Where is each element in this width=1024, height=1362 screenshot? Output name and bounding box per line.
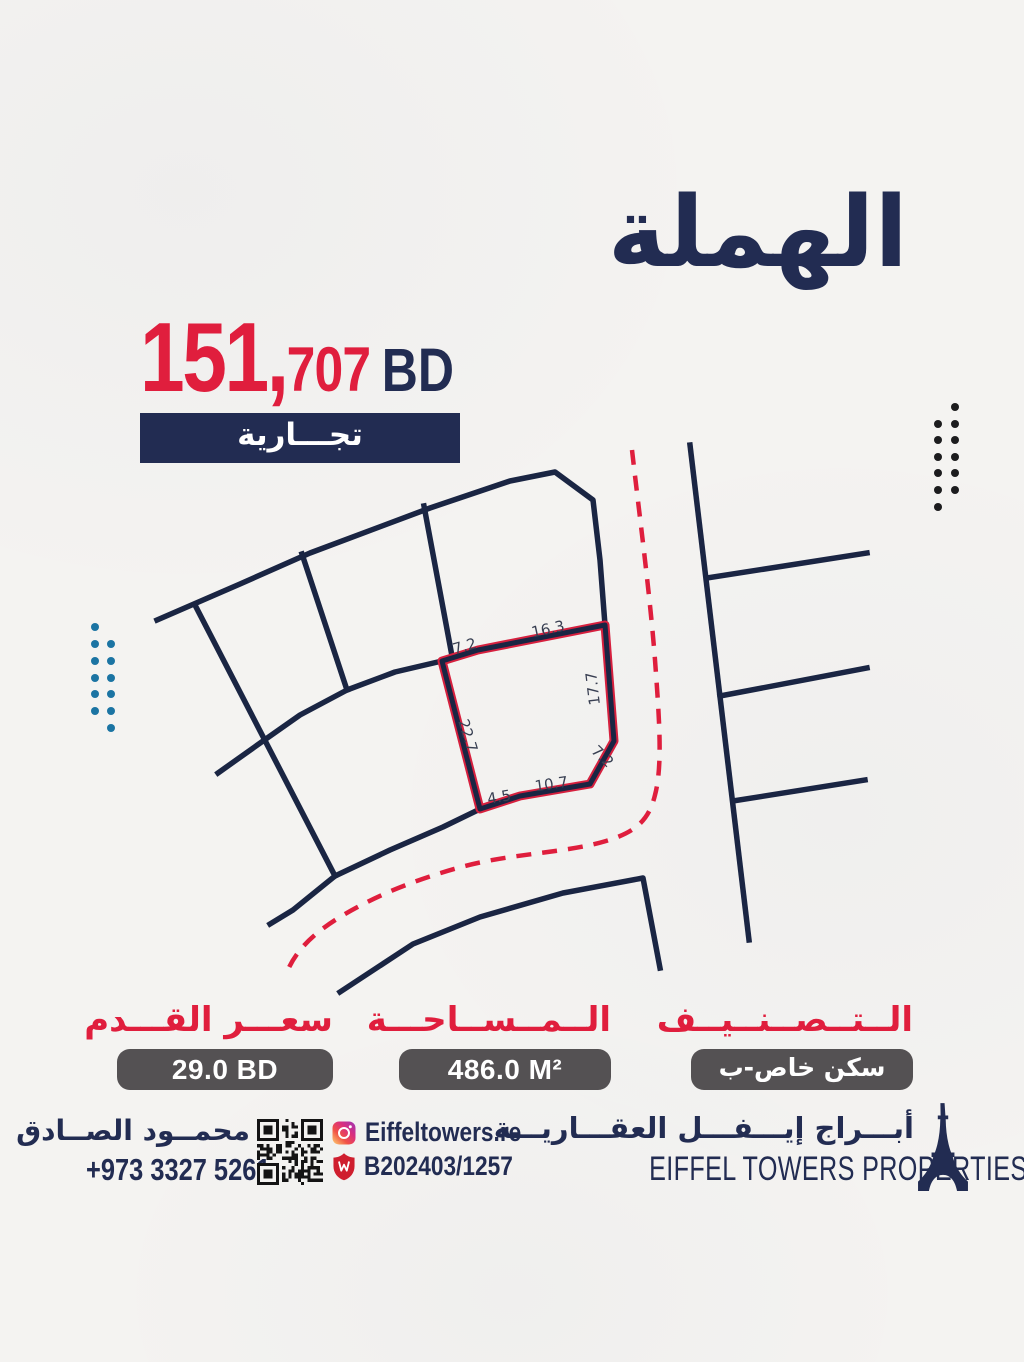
plot-divider-b — [302, 554, 347, 690]
dots-pattern-left — [91, 623, 115, 732]
price-per-foot-value-box: 29.0 BD — [117, 1049, 333, 1090]
boundary-dashed-line — [287, 450, 660, 972]
plot-divider-c — [424, 506, 452, 656]
license-shield-icon — [333, 1153, 355, 1181]
classification-value: سكن خاص-ب — [719, 1053, 886, 1086]
agent-phone: +973 3327 5261 — [86, 1153, 250, 1187]
classification-label: الــتــصــنــيــف — [691, 998, 913, 1042]
road-lower-arc — [270, 809, 480, 924]
road-bottom — [340, 878, 660, 992]
detail-classification: الــتــصــنــيــف سكن خاص-ب — [691, 998, 913, 1090]
detail-area: الــمــســاحـــة 486.0 M² — [399, 998, 611, 1090]
detail-price-per-foot: سعـــر القـــدم 29.0 BD — [117, 998, 333, 1090]
area-value: 486.0 M² — [448, 1054, 563, 1086]
company-name-arabic: أبـــراج إيـــفـــل العقـــاريـــة — [556, 1111, 914, 1146]
price-per-foot-label: سعـــر القـــدم — [117, 998, 333, 1042]
company-block: أبـــراج إيـــفـــل العقـــاريـــة EIFFE… — [556, 1111, 914, 1188]
area-value-box: 486.0 M² — [399, 1049, 611, 1090]
qr-code — [257, 1119, 323, 1185]
eiffel-tower-logo — [917, 1101, 969, 1205]
real-estate-flyer: الهملة 151,707BD تجـــارية 7.2 16.3 — [0, 0, 1024, 1362]
license-row: B202403/1257 — [332, 1153, 551, 1180]
road-right-branch-2 — [720, 668, 867, 696]
dimension-label: 17.7 — [582, 671, 604, 706]
agent-name: محمــود الصــادق — [50, 1114, 250, 1148]
price-per-foot-value: 29.0 BD — [172, 1054, 278, 1086]
license-number: B202403/1257 — [364, 1153, 513, 1180]
road-top-arc — [157, 472, 605, 625]
road-right-branch-1 — [707, 553, 867, 578]
instagram-icon — [332, 1121, 356, 1145]
road-lines — [157, 445, 867, 992]
road-right-branch-3 — [733, 780, 865, 801]
agent-contact-block: محمــود الصــادق +973 3327 5261 — [50, 1114, 250, 1187]
dots-pattern-right — [934, 403, 959, 511]
area-label: الــمــســاحـــة — [399, 998, 611, 1042]
company-name-english: EIFFEL TOWERS PROPERTIES — [649, 1151, 914, 1188]
classification-value-box: سكن خاص-ب — [691, 1049, 913, 1090]
dimension-label: 4.5 — [486, 786, 513, 808]
